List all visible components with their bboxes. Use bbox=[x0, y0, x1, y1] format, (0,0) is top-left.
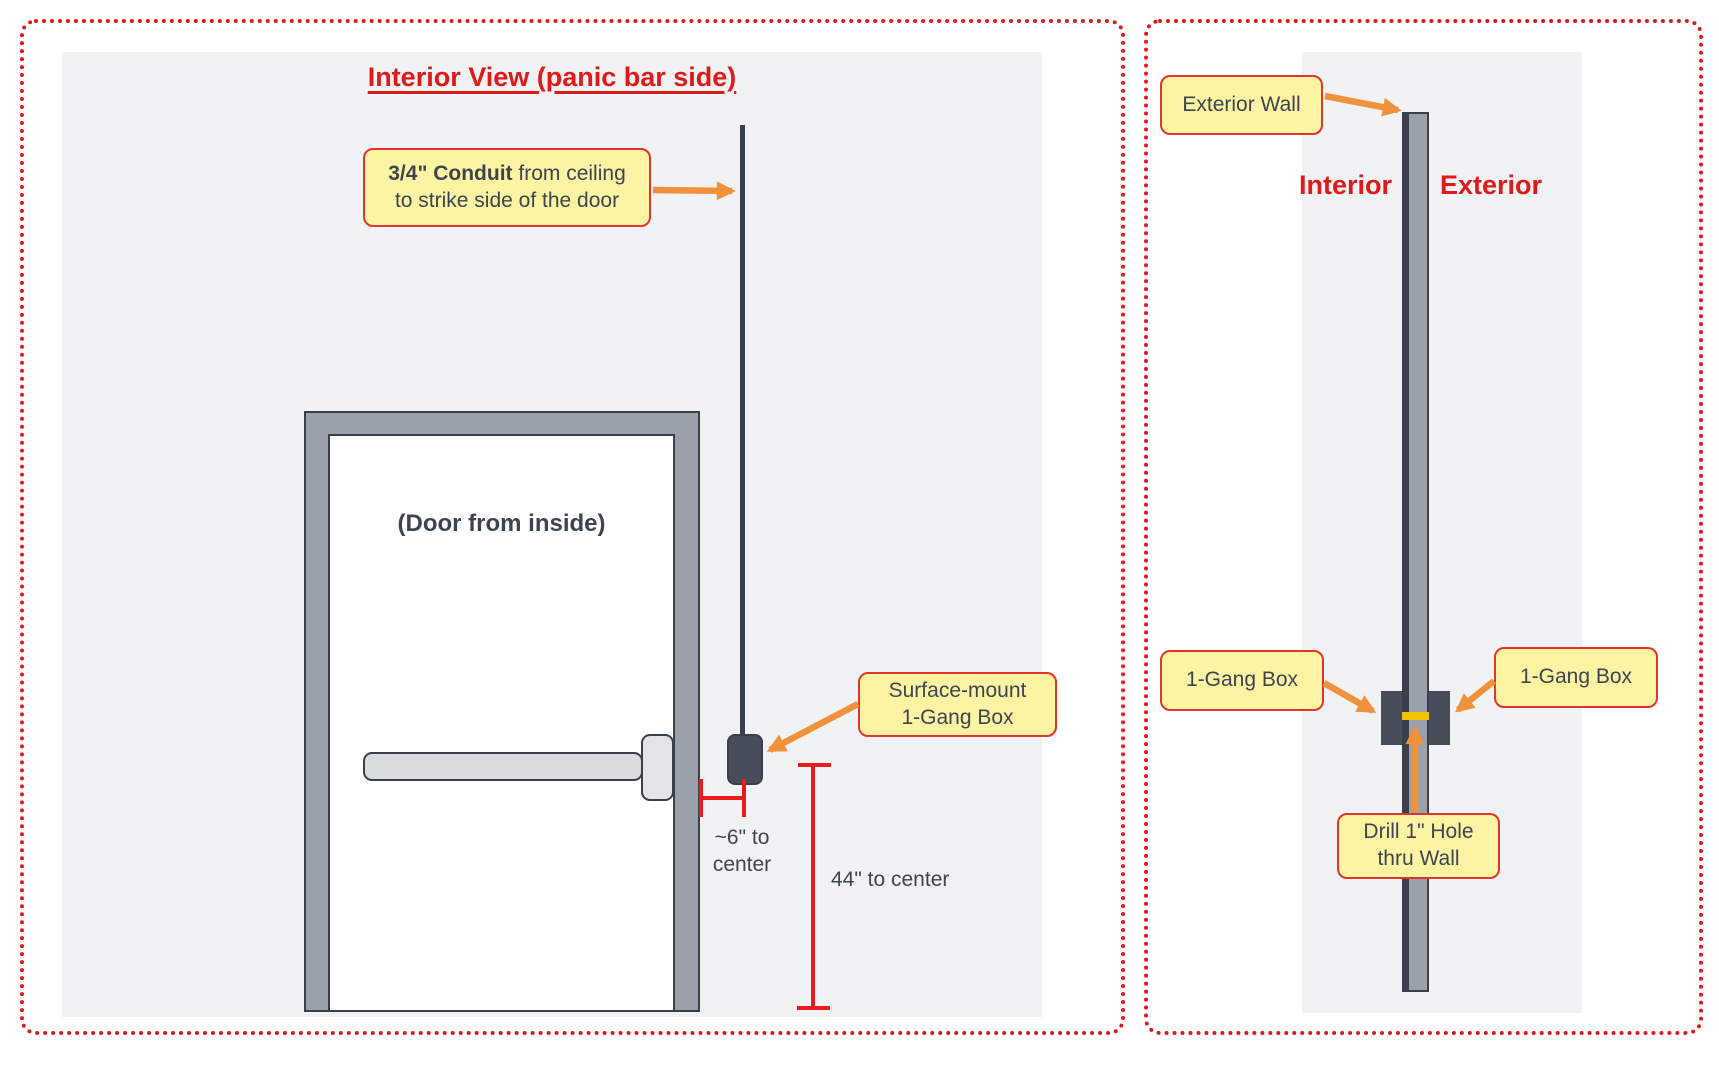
conduit-callout-bold-text: 3/4" Conduit bbox=[388, 162, 512, 185]
drill-hole-line bbox=[1402, 712, 1429, 720]
offset-dim-label-line1: ~6" to bbox=[698, 824, 786, 851]
exterior-label: Exterior bbox=[1440, 170, 1570, 201]
conduit-callout: 3/4" Conduit from ceiling to strike side… bbox=[363, 148, 651, 227]
diagram-canvas: Interior View (panic bar side) (Door fro… bbox=[0, 0, 1719, 1066]
surface-mount-gang-box bbox=[727, 734, 763, 785]
interior-gang-box-callout-text: 1-Gang Box bbox=[1186, 667, 1298, 694]
drill-hole-callout-line2: thru Wall bbox=[1377, 846, 1459, 873]
conduit-callout-line1-rest: from ceiling bbox=[513, 162, 626, 185]
exterior-wall-callout-text: Exterior Wall bbox=[1182, 92, 1300, 119]
exterior-gang-box bbox=[1429, 691, 1450, 745]
drill-hole-callout: Drill 1" Hole thru Wall bbox=[1337, 813, 1500, 879]
exterior-wall-callout: Exterior Wall bbox=[1160, 75, 1323, 135]
exterior-gang-box-callout: 1-Gang Box bbox=[1494, 647, 1658, 708]
panic-bar bbox=[363, 752, 643, 781]
height-dim-bottom-tick bbox=[797, 1006, 830, 1010]
height-dim-line bbox=[811, 763, 815, 1010]
surface-mount-callout-line2: 1-Gang Box bbox=[901, 705, 1013, 732]
conduit-callout-line2: to strike side of the door bbox=[395, 188, 619, 215]
surface-mount-callout-line1: Surface-mount bbox=[889, 678, 1027, 705]
offset-dim-label: ~6" to center bbox=[698, 824, 786, 879]
offset-dim-line bbox=[699, 796, 746, 800]
interior-label: Interior bbox=[1270, 170, 1392, 201]
interior-gang-box-callout: 1-Gang Box bbox=[1160, 650, 1324, 711]
interior-gang-box bbox=[1381, 691, 1402, 745]
surface-mount-callout: Surface-mount 1-Gang Box bbox=[858, 672, 1057, 737]
height-dim-label: 44" to center bbox=[831, 866, 991, 893]
door-label: (Door from inside) bbox=[328, 510, 675, 538]
offset-dim-label-line2: center bbox=[698, 851, 786, 878]
exterior-gang-box-callout-text: 1-Gang Box bbox=[1520, 664, 1632, 691]
conduit-callout-line1: 3/4" Conduit from ceiling bbox=[388, 161, 626, 188]
drill-hole-callout-line1: Drill 1" Hole bbox=[1363, 819, 1473, 846]
conduit-line bbox=[740, 125, 745, 735]
panic-bar-end-cap bbox=[641, 734, 674, 801]
interior-view-title: Interior View (panic bar side) bbox=[62, 62, 1042, 93]
